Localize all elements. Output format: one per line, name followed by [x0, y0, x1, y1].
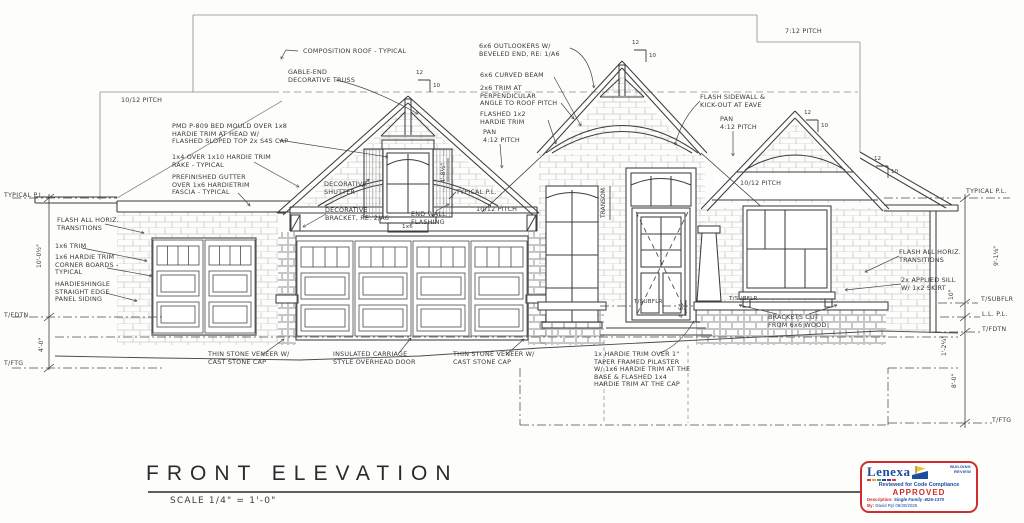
logo-color-strip — [867, 479, 910, 481]
annotation-pitch-mid: 10/12 PITCH — [476, 206, 517, 214]
annotation-brackets: BRACKETS CUT FROM 6x6 WOOD — [768, 314, 827, 329]
level-left-tftg: T/FTG — [4, 360, 23, 367]
annotation-corner-boards: 1x6 HARDIE TRIM CORNER BOARDS - TYPICAL — [55, 254, 119, 277]
dim-right-ftg: 8'-0" — [951, 374, 958, 388]
pitch-run: 12 — [416, 70, 423, 76]
annotation-composition-roof: COMPOSITION ROOF - TYPICAL — [303, 48, 406, 56]
annotation-flash-sidewall: FLASH SIDEWALL & KICK-OUT AT EAVE — [700, 94, 765, 109]
pitch-run: 12 — [632, 40, 639, 46]
drawing-scale: SCALE 1/4" = 1'-0" — [170, 496, 277, 506]
pitch-rise: 10 — [649, 53, 656, 59]
level-left-tfdtn: T/FDTN — [4, 312, 28, 319]
annotation-flash-horiz-left: FLASH ALL HORIZ. TRANSITIONS — [57, 217, 119, 232]
annotation-pitch-right: 10/12 PITCH — [740, 180, 781, 188]
level-left-typical-pl: TYPICAL P.L. — [4, 192, 45, 199]
lenexa-flag-icon — [912, 466, 928, 479]
annotation-tsubflr-porch: T/SUBFLR — [729, 296, 758, 303]
stamp-department: BUILDING REVIEW — [950, 465, 971, 475]
annotation-decorative-shutter: DECORATIVE SHUTTER — [324, 181, 367, 196]
annotation-carriage-door: INSULATED CARRIAGE STYLE OVERHEAD DOOR — [333, 351, 416, 366]
dim-right-wall: 9'-1⅛" — [993, 246, 1000, 266]
stamp-city-logo: Lenexa — [867, 465, 910, 478]
dim-porch: 4'-6" — [678, 304, 685, 318]
annotation-flash-horiz-right: FLASH ALL HORIZ. TRANSITIONS — [899, 249, 961, 264]
annotation-stone-left: THIN STONE VENEER W/ CAST STONE CAP — [208, 351, 289, 366]
annotation-hardieshingle: HARDIESHINGLE STRAIGHT EDGE PANEL SIDING — [55, 281, 110, 304]
annotation-1x6-trim: 1x6 TRIM — [55, 243, 86, 251]
level-right-ll-pl: L.L. P.L. — [982, 311, 1008, 318]
annotation-window-1x6: 1x6 — [402, 224, 413, 231]
pitch-rise: 10 — [433, 83, 440, 89]
stamp-by-value: David Ryl 09/30/2025 — [875, 503, 917, 508]
annotation-tsubflr-door: T/SUBFLR — [634, 299, 663, 306]
annotation-flashed-trim: FLASHED 1x2 HARDIE TRIM — [480, 111, 526, 126]
drawing-title: FRONT ELEVATION — [146, 462, 459, 486]
stamp-description-value: Single Family -B25-1370 — [894, 497, 944, 502]
annotation-transom: TRANSOM — [600, 188, 607, 218]
pitch-run: 12 — [804, 110, 811, 116]
annotation-typical-pl-mid: TYPICAL P.L. — [456, 189, 497, 197]
annotation-decorative-bracket: DECORATIVE BRACKET, RE: 2/A6 — [325, 207, 389, 222]
level-right-tftg: T/FTG — [992, 417, 1011, 424]
annotation-pan-right: PAN 4:12 PITCH — [720, 116, 757, 131]
pitch-run: 12 — [874, 156, 881, 162]
annotation-pan-center: PAN 4:12 PITCH — [483, 129, 520, 144]
dim-left-wall: 10'-0½" — [36, 244, 43, 268]
annotation-pitch-7-12: 7:12 PITCH — [785, 28, 822, 36]
level-right-typical-pl: TYPICAL P.L. — [966, 188, 1007, 195]
annotation-stone-right: THIN STONE VENEER W/ CAST STONE CAP — [453, 351, 534, 366]
elevation-sheet: COMPOSITION ROOF - TYPICAL GABLE-END DEC… — [0, 0, 1024, 523]
level-right-tfdtn: T/FDTN — [982, 326, 1006, 333]
stamp-description-label: Description: — [867, 497, 893, 502]
annotation-gutter: PREFINISHED GUTTER OVER 1x6 HARDIETRIM F… — [172, 174, 250, 197]
annotation-end-wall-flashing: END WALL FLASHING — [411, 211, 446, 226]
dim-left-ftg: 4'-0" — [38, 338, 45, 352]
annotation-taper-pilaster: 1x HARDIE TRIM OVER 1" TAPER FRAMED PILA… — [594, 351, 690, 389]
level-right-tsubflr: T/SUBFLR — [981, 296, 1013, 303]
pitch-rise: 10 — [821, 123, 828, 129]
annotation-outlookers: 6x6 OUTLOOKERS W/ BEVELED END, RE: 1/A6 — [479, 43, 560, 58]
stamp-status: APPROVED — [867, 488, 971, 497]
annotation-2x6-trim: 2x6 TRIM AT PERPENDICULAR ANGLE TO ROOF … — [480, 85, 557, 108]
annotation-gable-truss: GABLE-END DECORATIVE TRUSS — [288, 69, 355, 84]
dim-right-step: 10" — [948, 290, 955, 300]
pitch-rise: 10 — [891, 169, 898, 175]
annotation-rake-trim: 1x4 OVER 1x10 HARDIE TRIM RAKE - TYPICAL — [172, 154, 271, 169]
annotation-curved-beam: 6x6 CURVED BEAM — [480, 72, 544, 80]
dim-gable-window: 4'-8½" — [440, 163, 447, 183]
stamp-by-label: By: — [867, 503, 874, 508]
annotation-pitch-left: 10/12 PITCH — [121, 97, 162, 105]
annotation-bed-mould: PMD P-809 BED MOULD OVER 1x8 HARDIE TRIM… — [172, 123, 288, 146]
approval-stamp: Lenexa BUILDING REVIEW Reviewed for Code… — [860, 461, 978, 513]
dim-right-fdtn: 1'-2¼" — [941, 336, 948, 356]
